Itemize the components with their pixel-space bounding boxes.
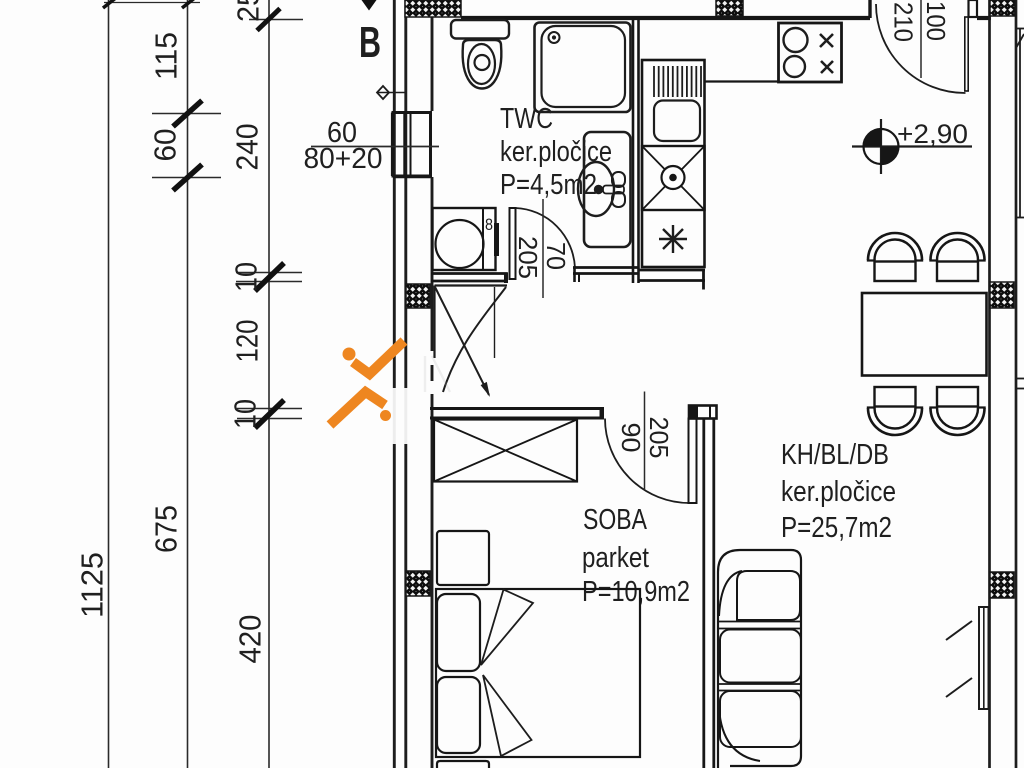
svg-text:205: 205 <box>513 236 543 279</box>
svg-text:TWC: TWC <box>500 103 553 135</box>
svg-text:10: 10 <box>228 399 263 429</box>
svg-text:25: 25 <box>231 0 266 22</box>
svg-text:80+20: 80+20 <box>304 143 383 175</box>
svg-text:parket: parket <box>582 542 649 574</box>
svg-text:120: 120 <box>230 320 265 363</box>
svg-text:205: 205 <box>644 417 674 459</box>
svg-text:420: 420 <box>233 615 268 664</box>
svg-text:70: 70 <box>541 242 571 270</box>
svg-text:115: 115 <box>149 32 184 80</box>
svg-text:100: 100 <box>921 1 951 41</box>
svg-text:+2,90: +2,90 <box>897 119 968 149</box>
svg-text:B: B <box>359 18 381 67</box>
svg-text:P=4,5m2: P=4,5m2 <box>500 169 597 201</box>
svg-text:8: 8 <box>485 215 493 234</box>
svg-text:210: 210 <box>889 2 919 42</box>
svg-text:SOBA: SOBA <box>583 504 648 536</box>
svg-text:ker.pločice: ker.pločice <box>781 476 896 508</box>
svg-text:ker.pločice: ker.pločice <box>500 136 612 168</box>
svg-text:90: 90 <box>616 423 646 453</box>
svg-text:60: 60 <box>148 129 183 162</box>
svg-text:1125: 1125 <box>75 552 110 618</box>
svg-text:KH/BL/DB: KH/BL/DB <box>781 439 889 471</box>
svg-text:675: 675 <box>149 505 184 553</box>
svg-text:240: 240 <box>230 124 265 171</box>
svg-text:P=10,9m2: P=10,9m2 <box>582 576 690 608</box>
svg-text:10: 10 <box>229 262 264 292</box>
svg-text:P=25,7m2: P=25,7m2 <box>781 512 892 544</box>
